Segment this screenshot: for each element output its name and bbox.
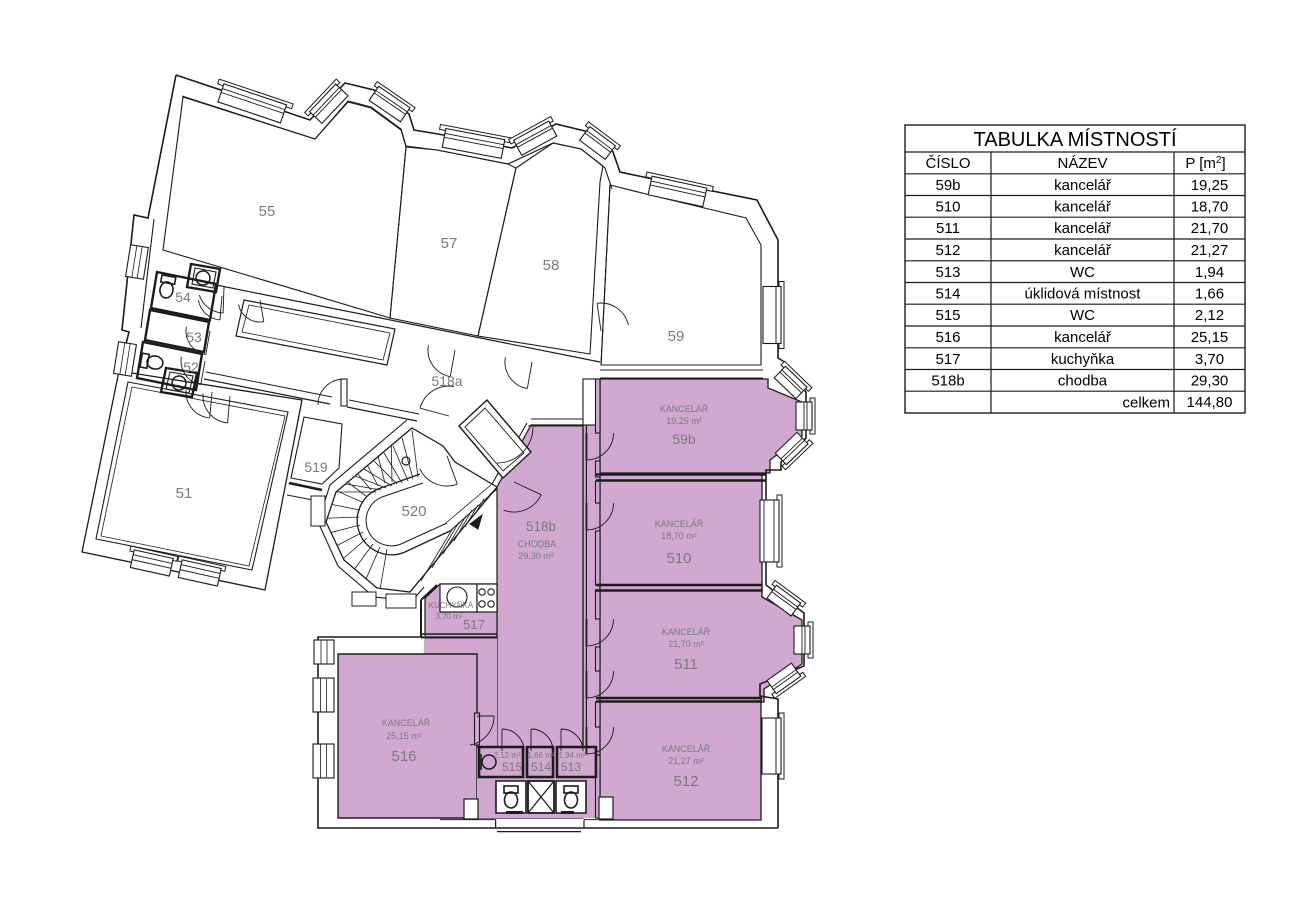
svg-text:18,70: 18,70 — [1191, 199, 1229, 216]
svg-text:520: 520 — [401, 503, 426, 520]
svg-text:51: 51 — [176, 485, 193, 502]
svg-text:518b: 518b — [931, 373, 964, 390]
svg-text:514: 514 — [531, 760, 551, 774]
svg-text:511: 511 — [674, 656, 698, 673]
svg-text:21,27 m²: 21,27 m² — [668, 756, 704, 766]
svg-text:WC: WC — [1070, 307, 1095, 324]
svg-text:21,70: 21,70 — [1191, 220, 1229, 237]
svg-text:517: 517 — [935, 351, 960, 368]
svg-text:25,15 m²: 25,15 m² — [386, 731, 422, 741]
svg-text:3,70: 3,70 — [1195, 351, 1224, 368]
svg-text:58: 58 — [543, 257, 560, 274]
svg-text:518a: 518a — [431, 373, 462, 389]
svg-text:29,30 m²: 29,30 m² — [518, 551, 554, 561]
svg-text:54: 54 — [175, 289, 191, 305]
svg-text:kancelář: kancelář — [1054, 177, 1112, 194]
svg-text:TABULKA MÍSTNOSTÍ: TABULKA MÍSTNOSTÍ — [974, 128, 1177, 151]
svg-text:144,80: 144,80 — [1187, 394, 1233, 411]
svg-text:1,66 m²: 1,66 m² — [527, 751, 554, 760]
svg-text:kancelář: kancelář — [1054, 220, 1112, 237]
svg-text:59: 59 — [668, 328, 685, 345]
svg-text:chodba: chodba — [1058, 373, 1108, 390]
svg-text:512: 512 — [935, 242, 960, 259]
svg-text:1,66: 1,66 — [1195, 286, 1224, 303]
svg-text:53: 53 — [186, 329, 202, 345]
svg-text:celkem: celkem — [1122, 394, 1170, 411]
svg-text:55: 55 — [259, 203, 276, 220]
svg-text:KUCHYŇKA: KUCHYŇKA — [429, 601, 474, 610]
svg-text:25,15: 25,15 — [1191, 329, 1229, 346]
svg-text:21,27: 21,27 — [1191, 242, 1229, 259]
svg-text:515: 515 — [935, 307, 960, 324]
svg-text:29,30: 29,30 — [1191, 373, 1229, 390]
svg-text:519: 519 — [304, 459, 328, 475]
svg-text:2,12 m²: 2,12 m² — [493, 751, 520, 760]
svg-text:WC: WC — [1070, 264, 1095, 281]
svg-text:515: 515 — [502, 760, 522, 774]
svg-text:KANCELÁŘ: KANCELÁŘ — [655, 519, 704, 529]
svg-text:59b: 59b — [935, 177, 960, 194]
svg-text:517: 517 — [463, 617, 485, 632]
svg-text:1,94 m²: 1,94 m² — [558, 751, 585, 760]
svg-text:3,70 m²: 3,70 m² — [435, 612, 462, 621]
svg-text:518b: 518b — [526, 519, 556, 534]
svg-text:516: 516 — [935, 329, 960, 346]
svg-text:KANCELÁŘ: KANCELÁŘ — [660, 404, 709, 414]
svg-text:514: 514 — [935, 286, 960, 303]
svg-text:52: 52 — [183, 359, 199, 375]
svg-text:512: 512 — [673, 773, 698, 790]
svg-text:19,25: 19,25 — [1191, 177, 1229, 194]
svg-text:513: 513 — [935, 264, 960, 281]
svg-text:511: 511 — [936, 220, 960, 237]
svg-text:ČÍSLO: ČÍSLO — [925, 155, 970, 172]
svg-text:513: 513 — [561, 760, 581, 774]
svg-text:kuchyňka: kuchyňka — [1051, 351, 1115, 368]
svg-text:59b: 59b — [672, 431, 696, 447]
svg-text:18,70 m²: 18,70 m² — [661, 531, 697, 541]
svg-text:kancelář: kancelář — [1054, 329, 1112, 346]
svg-text:19,25 m²: 19,25 m² — [666, 416, 702, 426]
svg-text:1,94: 1,94 — [1195, 264, 1224, 281]
svg-text:KANCELÁŘ: KANCELÁŘ — [662, 744, 711, 754]
svg-text:510: 510 — [935, 199, 960, 216]
svg-text:NÁZEV: NÁZEV — [1057, 155, 1107, 172]
svg-text:510: 510 — [666, 550, 691, 567]
svg-text:516: 516 — [391, 748, 416, 765]
svg-text:kancelář: kancelář — [1054, 199, 1112, 216]
svg-text:21,70 m²: 21,70 m² — [668, 639, 704, 649]
svg-text:kancelář: kancelář — [1054, 242, 1112, 259]
svg-text:2,12: 2,12 — [1195, 307, 1224, 324]
svg-text:57: 57 — [441, 235, 458, 252]
svg-text:úklidová místnost: úklidová místnost — [1025, 286, 1142, 303]
svg-text:KANCELÁŘ: KANCELÁŘ — [662, 627, 711, 637]
svg-text:KANCELÁŘ: KANCELÁŘ — [382, 718, 431, 728]
svg-text:CHODBA: CHODBA — [518, 539, 557, 549]
